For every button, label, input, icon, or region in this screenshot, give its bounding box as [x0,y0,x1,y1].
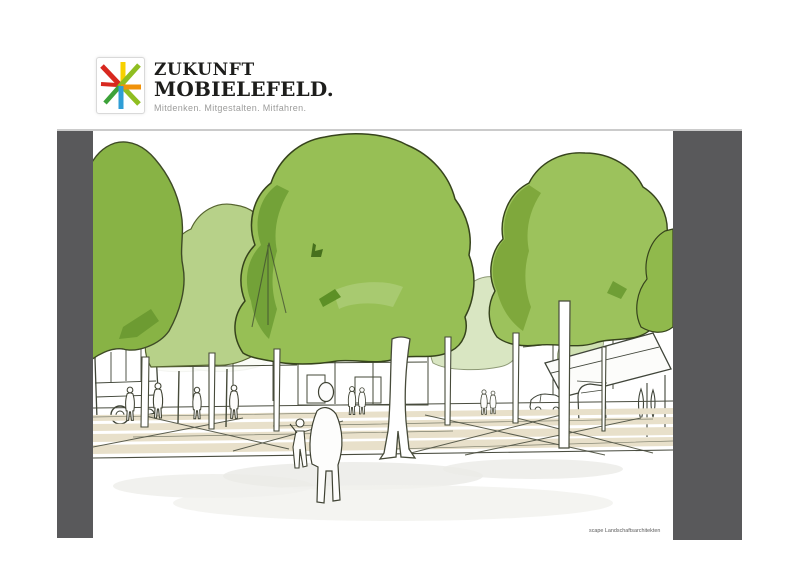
slide-page: ZUKUNFT MOBIELEFELD. Mitdenken. Mitgesta… [0,0,800,566]
logo: ZUKUNFT MOBIELEFELD. Mitdenken. Mitgesta… [96,57,334,114]
street-sketch-svg: scape Landschaftsarchitekten [93,131,673,540]
logo-wordmark: ZUKUNFT MOBIELEFELD. Mitdenken. Mitgesta… [154,57,334,114]
plaza-washes [113,459,623,521]
rendering-canvas: scape Landschaftsarchitekten [93,131,673,540]
right-gray-bar [673,131,742,540]
logo-tagline: Mitdenken. Mitgestalten. Mitfahren. [154,103,334,113]
street-band [93,401,673,458]
foreground-trees [93,134,673,367]
architect-credit: scape Landschaftsarchitekten [589,528,660,534]
street-rendering-figure: scape Landschaftsarchitekten [57,129,742,542]
transit-junction-logo-icon [96,57,145,114]
logo-title-line2: MOBIELEFELD. [154,79,334,100]
left-gray-bar [57,131,93,538]
